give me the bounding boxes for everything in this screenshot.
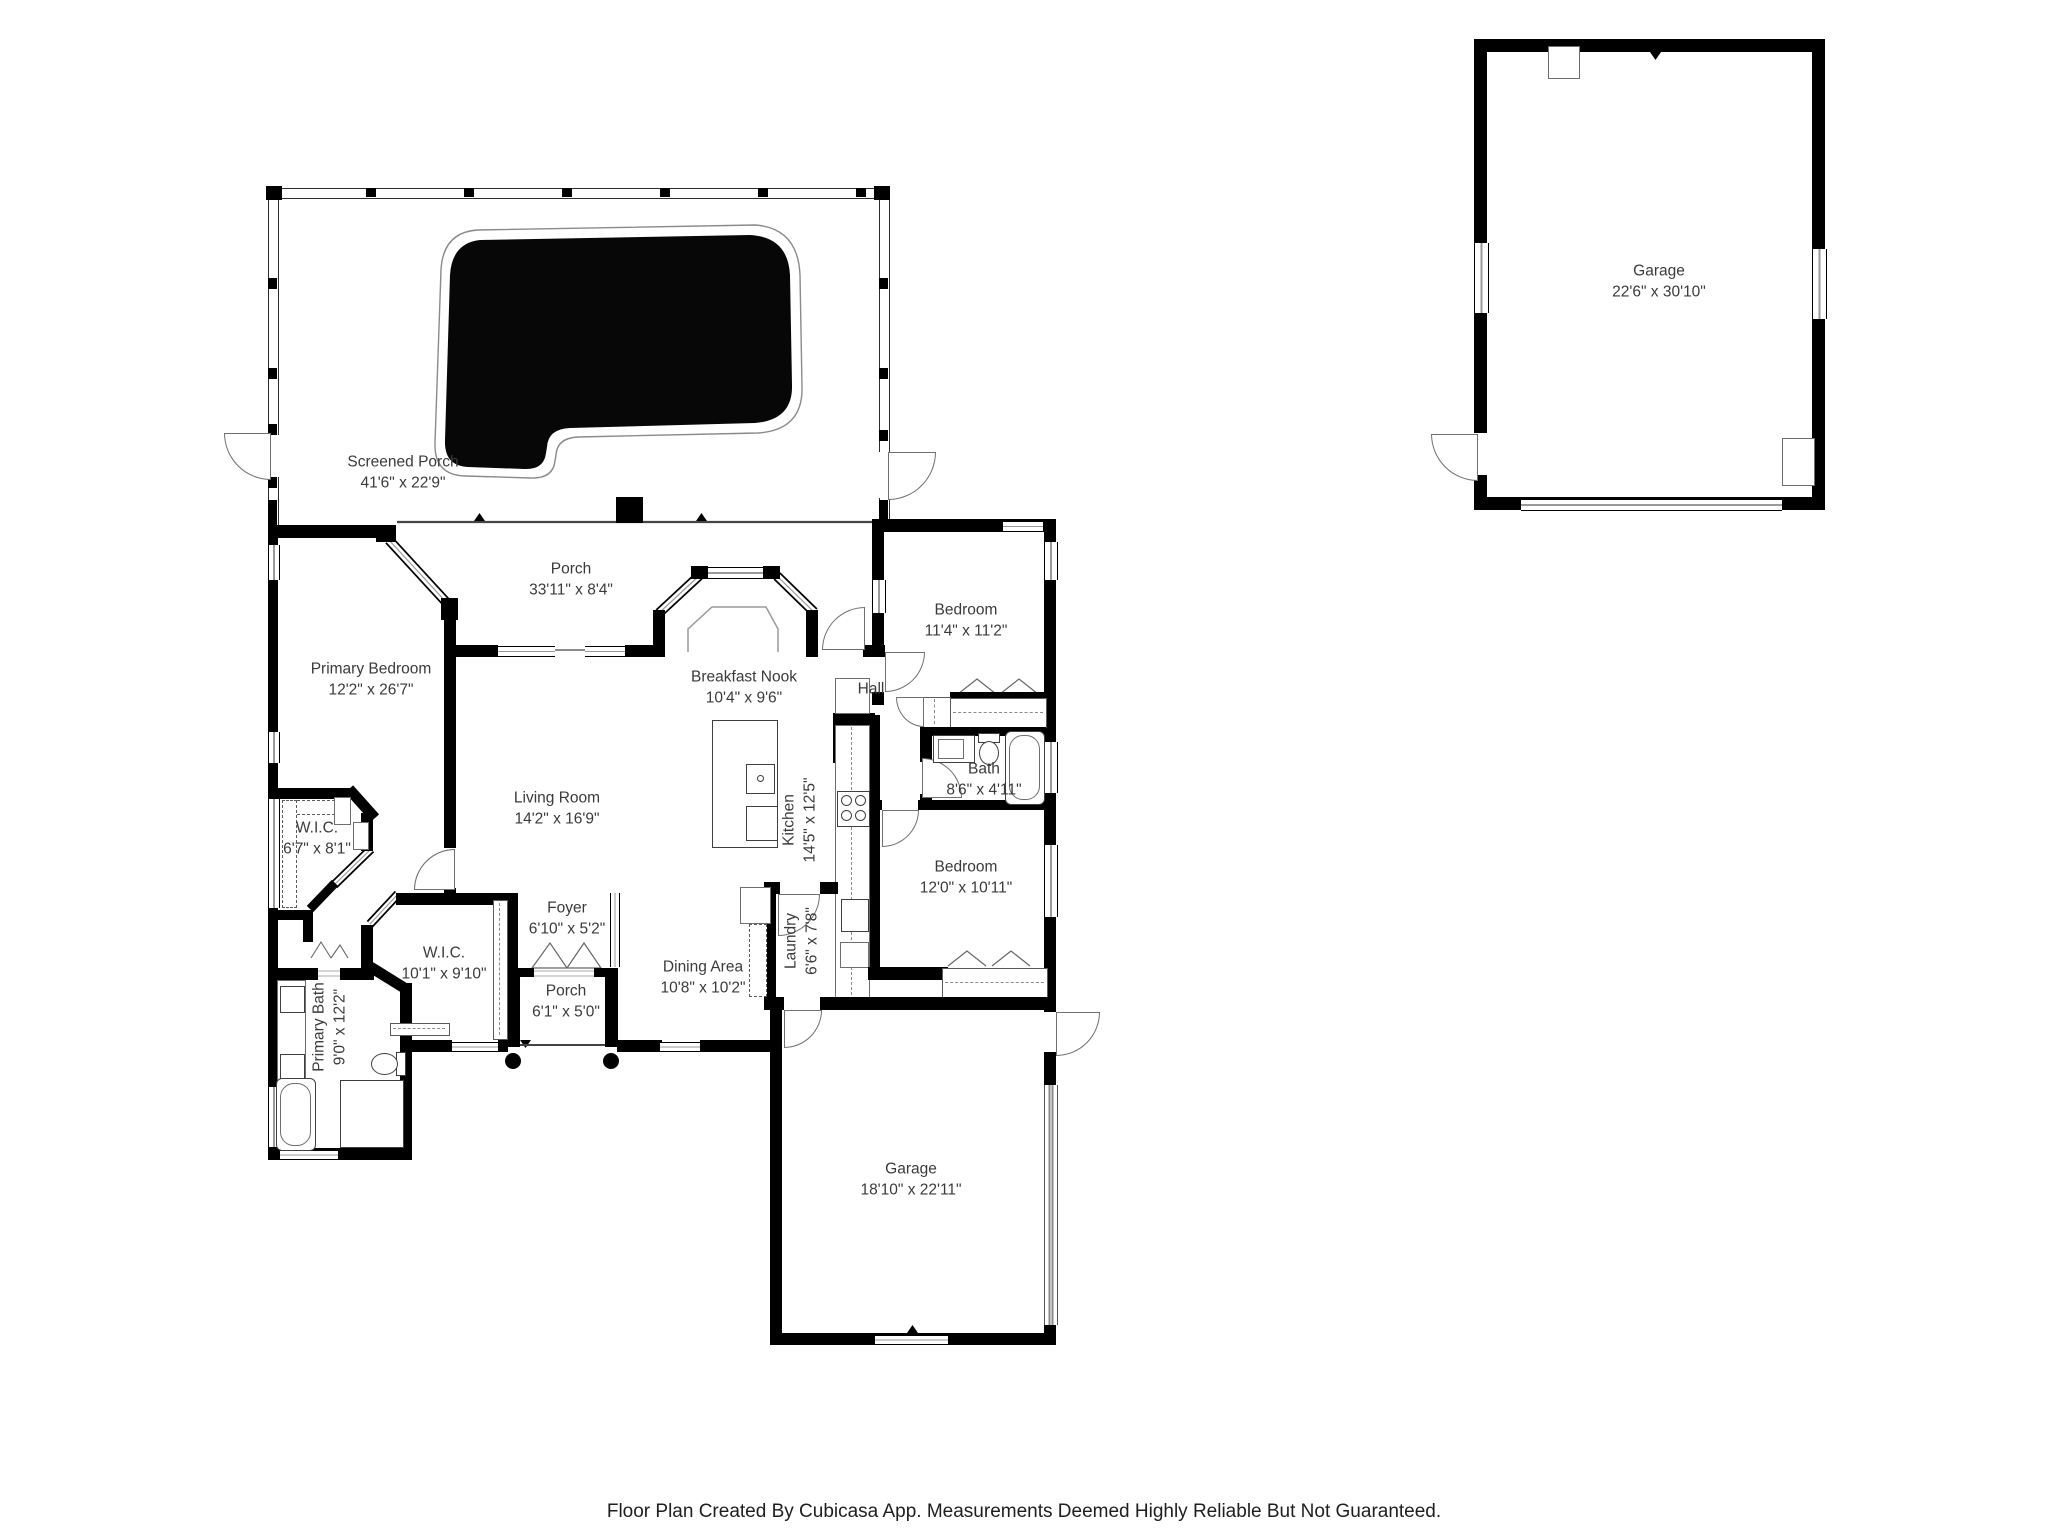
post [366,188,376,197]
garage-door [875,1335,948,1345]
window [1044,742,1058,793]
toilet [371,1053,398,1075]
window [585,646,625,657]
sink [280,1054,305,1081]
room-label-kitchen: Kitchen 14'5" x 12'5" [779,777,822,862]
porch-column [603,1053,619,1069]
room-dims: 9'0" x 12'2" [330,982,351,1072]
door-opening [1044,1012,1056,1052]
window [498,646,555,657]
closet-rod [945,982,1044,984]
cabinet [740,887,771,924]
room-label-bedroom-front: Bedroom 11'4" x 11'2" [925,600,1008,643]
room-label-porch-entry: Porch 6'1" x 5'0" [532,981,600,1024]
window [1474,243,1489,313]
room-label-wic-large: W.I.C. 10'1" x 9'10" [401,943,486,986]
window [452,1042,498,1052]
nook-arch [688,607,778,652]
opening-line [555,649,585,651]
island-cooktop [746,806,778,841]
closet-rod [934,699,936,724]
room-dims: 14'5" x 12'5" [800,777,821,862]
post [464,188,474,197]
sink [938,739,964,759]
room-name: Bedroom [920,857,1012,878]
faucet [757,775,764,782]
wall [872,519,884,580]
room-label-primary-bath: Primary Bath 9'0" x 12'2" [309,982,352,1072]
room-name: Primary Bath [309,982,330,1072]
wall [617,1040,662,1052]
post [879,368,888,379]
closet-rod [393,1028,445,1030]
wall [872,613,884,652]
post [879,278,888,289]
room-dims: 6'6" x 7'8" [802,907,823,975]
wall [303,910,313,942]
footer-disclaimer: Floor Plan Created By Cubicasa App. Meas… [607,1501,1441,1523]
wall [700,1040,772,1052]
utility-pad [1548,46,1580,79]
wall [376,525,396,542]
floor-plan: Screened Porch 41'6" x 22'9" Garage 22'6… [0,0,2048,1536]
room-label-porch-back: Porch 33'11" x 8'4" [529,559,613,602]
wall [806,610,818,657]
room-label-foyer: Foyer 6'10" x 5'2" [529,898,605,941]
garage-door-side [1044,1085,1058,1325]
room-name: Porch [532,981,600,1002]
room-name: Laundry [781,907,802,975]
wall [1474,39,1825,52]
wall [605,968,618,1047]
closet-rod [499,903,501,1035]
glass-partition [610,893,620,967]
post [268,278,277,289]
closet-shelf [353,822,369,850]
wall [868,967,948,980]
wall [498,1040,508,1052]
room-name: Garage [1612,261,1706,282]
post [758,188,768,197]
room-name: Bath [946,759,1021,780]
door-opening [784,997,820,1010]
burner [855,810,866,821]
room-label-bath: Bath 8'6" x 4'11" [946,759,1021,802]
room-label-wic-small: W.I.C. 6'7" x 8'1" [283,818,351,861]
room-name: Breakfast Nook [691,667,797,688]
room-dims: 14'2" x 16'9" [514,809,600,830]
post [856,188,866,197]
laundry-appliance [840,942,869,968]
room-name: Garage [860,1159,961,1180]
window [1044,542,1058,580]
window [708,567,763,579]
room-label-breakfast-nook: Breakfast Nook 10'4" x 9'6" [691,667,797,710]
door-opening [882,800,918,810]
room-dims: 6'1" x 5'0" [532,1002,600,1023]
room-dims: 6'7" x 8'1" [283,839,351,860]
wall [820,882,838,894]
post [562,188,572,197]
room-name: W.I.C. [283,818,351,839]
room-name: Porch [529,559,613,580]
room-dims: 8'6" x 4'11" [946,780,1021,801]
wall [268,525,392,538]
window [660,1042,700,1052]
room-dims: 41'6" x 22'9" [347,473,458,494]
burner [841,795,852,806]
linen-closet [921,697,951,728]
room-dims: 33'11" x 8'4" [529,580,613,601]
shower [340,1080,404,1148]
room-label-screened-porch: Screened Porch 41'6" x 22'9" [347,452,458,495]
wall [340,968,374,980]
water-heater [1782,438,1815,486]
room-name: W.I.C. [401,943,486,964]
room-label-laundry: Laundry 6'6" x 7'8" [781,907,824,975]
post [616,497,643,523]
room-name: Primary Bedroom [311,659,432,680]
room-dims: 10'4" x 9'6" [691,688,797,709]
window [268,795,280,908]
sink [280,986,305,1013]
room-dims: 22'6" x 30'10" [1612,282,1706,303]
room-name: Kitchen [779,777,800,862]
wall [361,925,373,968]
room-name: Dining Area [660,957,745,978]
room-dims: 12'0" x 10'11" [920,878,1012,899]
room-name: Hall [858,678,885,699]
room-name: Bedroom [925,600,1008,621]
post [268,500,277,525]
wall [452,645,498,657]
garage-door [1521,499,1782,511]
room-name: Foyer [529,898,605,919]
porch-column [505,1053,521,1069]
room-dims: 6'10" x 5'2" [529,919,605,940]
post [874,186,890,200]
screen-wall [268,188,888,199]
wall [691,566,708,579]
bathtub-basin [280,1083,311,1146]
room-label-living-room: Living Room 14'2" x 16'9" [514,788,600,831]
room-dims: 12'2" x 26'7" [311,680,432,701]
burner [841,810,852,821]
room-dims: 11'4" x 11'2" [925,621,1008,642]
room-dims: 10'1" x 9'10" [401,964,486,985]
closet-rod [953,712,1043,714]
wall [653,610,665,657]
post [879,430,888,441]
window [1812,249,1827,319]
window [1003,521,1043,532]
laundry-sink [841,899,869,932]
room-label-primary-bedroom: Primary Bedroom 12'2" x 26'7" [311,659,432,702]
room-label-bedroom-mid: Bedroom 12'0" x 10'11" [920,857,1012,900]
room-name: Living Room [514,788,600,809]
cabinet [749,924,767,997]
room-dims: 10'8" x 10'2" [660,978,745,999]
room-label-garage-attached: Garage 18'10" x 22'11" [860,1159,961,1202]
window [268,545,280,580]
post [660,188,670,197]
room-label-hall: Hall [858,678,885,699]
room-label-dining-area: Dining Area 10'8" x 10'2" [660,957,745,1000]
room-dims: 18'10" x 22'11" [860,1180,961,1201]
wall [404,1040,452,1052]
burner [855,795,866,806]
wall [763,566,780,579]
window [280,1150,338,1160]
post [268,368,277,379]
window [872,580,886,613]
wall [268,968,318,980]
room-label-garage-detached: Garage 22'6" x 30'10" [1612,261,1706,304]
window [1044,845,1058,917]
wall [770,1002,782,1345]
post [266,186,282,200]
room-name: Screened Porch [347,452,458,473]
window [268,732,280,763]
